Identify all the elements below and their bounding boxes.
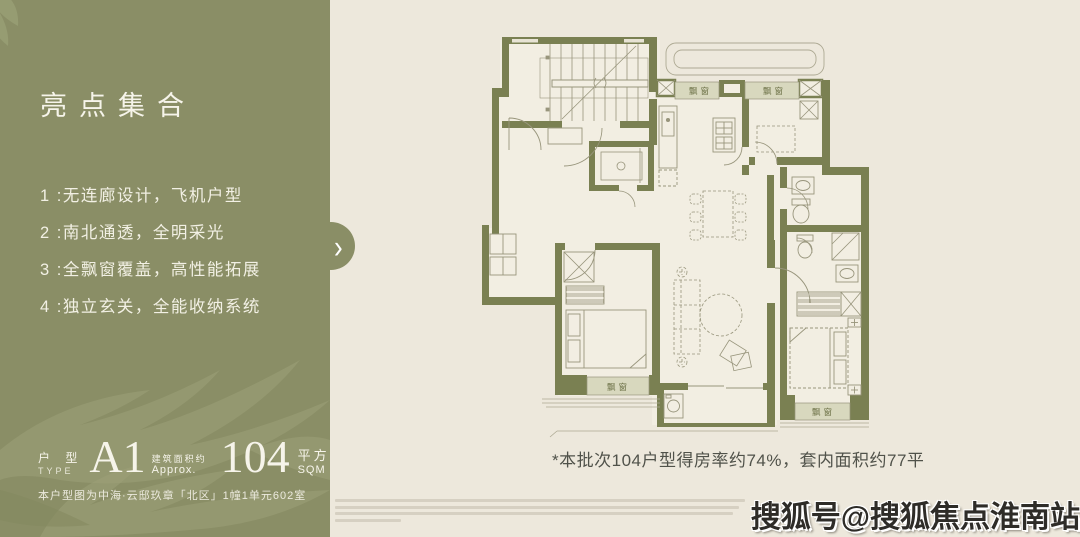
unit-area-unit-en: SQM <box>298 464 330 477</box>
highlight-list: 1 :无连廊设计，飞机户型 2 :南北通透，全明采光 3 :全飘窗覆盖，高性能拓… <box>40 178 261 326</box>
unit-type-label-cn: 户 型 <box>38 452 83 466</box>
unit-area-value: 104 <box>221 437 290 477</box>
highlight-item-3: 3 :全飘窗覆盖，高性能拓展 <box>40 252 261 289</box>
highlight-item-2: 2 :南北通透，全明采光 <box>40 215 261 252</box>
bay-window-top-left: 飘窗 <box>675 82 719 99</box>
unit-stats: 户 型 TYPE A1 建筑面积约 Approx. 104 平方米 SQM <box>38 437 330 477</box>
unit-location-note: 本户型图为中海·云邸玖章「北区」1幢1单元602室 <box>38 487 306 503</box>
highlight-item-1: 1 :无连廊设计，飞机户型 <box>40 178 261 215</box>
unit-area-unit: 平方米 SQM <box>298 449 330 477</box>
unit-type-value: A1 <box>89 437 145 477</box>
unit-area-label: 建筑面积约 Approx. <box>152 454 207 477</box>
highlight-item-4: 4 :独立玄关，全能收纳系统 <box>40 289 261 326</box>
unit-type-label: 户 型 TYPE <box>38 452 83 476</box>
bay-window-label-2: 飘窗 <box>763 86 786 96</box>
page-title: 亮点集合 <box>40 84 196 123</box>
bay-window-label-4: 飘窗 <box>812 407 835 417</box>
floorplan: 飘窗 飘窗 <box>480 28 880 438</box>
page: { "sidebar": { "title": "亮点集合", "highlig… <box>0 0 1080 537</box>
unit-area-label-en: Approx. <box>152 464 207 477</box>
plan-caption: *本批次104户型得房率约74%，套内面积约77平 <box>552 446 924 471</box>
bay-window-bottom-right: 飘窗 <box>795 403 850 420</box>
neighbor-outline <box>666 43 824 75</box>
main-panel: 飘窗 飘窗 <box>330 0 1080 537</box>
disclaimer-line <box>335 512 733 515</box>
bay-window-label-3: 飘窗 <box>607 382 630 392</box>
elevator-shaft-icon <box>657 80 675 96</box>
sidebar: 亮点集合 1 :无连廊设计，飞机户型 2 :南北通透，全明采光 3 :全飘窗覆盖… <box>0 0 330 537</box>
unit-area-label-cn: 建筑面积约 <box>152 454 207 464</box>
disclaimer-line <box>335 499 745 502</box>
duct-shaft-icon <box>719 80 745 97</box>
floorplan-svg: 飘窗 飘窗 <box>480 28 880 438</box>
unit-type-label-en: TYPE <box>38 466 83 476</box>
leaf-decoration-top-icon <box>0 0 100 96</box>
disclaimer-line <box>335 506 739 509</box>
disclaimer-line <box>335 519 401 522</box>
corner-duct-icon <box>799 80 822 97</box>
bay-window-bottom-left: 飘窗 <box>587 377 649 395</box>
bay-window-top-right: 飘窗 <box>745 82 799 99</box>
disclaimer-text <box>335 499 747 525</box>
watermark: 搜狐号@搜狐焦点淮南站 <box>751 492 1080 536</box>
bay-window-label-1: 飘窗 <box>689 86 712 96</box>
unit-area-unit-cn: 平方米 <box>298 449 330 464</box>
